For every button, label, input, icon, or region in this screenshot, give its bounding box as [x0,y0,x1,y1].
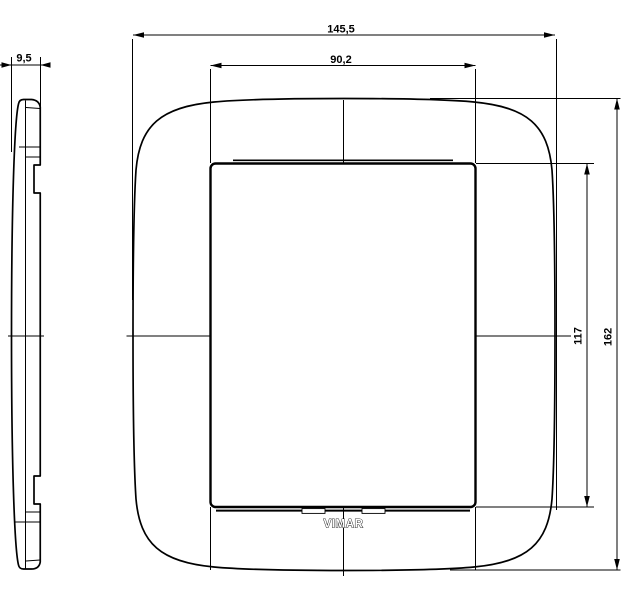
arrowhead [41,62,51,67]
clip-tab [302,509,325,514]
arrowhead [211,63,222,69]
clip-tab [362,509,385,514]
dimension-plate-width: 145,5 [133,24,557,511]
dim-side-depth-label: 9,5 [16,53,31,65]
arrowhead [614,99,620,110]
arrowhead [465,63,476,69]
arrowhead [544,32,555,38]
plate-outline [133,99,555,571]
arrowhead [584,496,590,507]
side-top-lip-line [26,108,40,109]
window-opening [211,164,476,508]
front-view: VIMAR [127,99,572,577]
dim-plate-width-label: 145,5 [327,24,355,36]
dimension-window-height: 117 [476,164,594,508]
dimension-plate-height: 162 [430,99,621,571]
drawing-canvas: 9,5 VIMAR [0,0,622,600]
arrowhead [614,559,620,570]
dim-plate-height-label: 162 [603,328,615,346]
vimar-plate-technical-drawing: 9,5 VIMAR [0,0,622,600]
arrowhead [2,62,12,67]
dim-window-height-label: 117 [573,327,585,345]
brand-logo: VIMAR [323,519,363,531]
side-bottom-lip-line [26,560,40,561]
dim-window-width-label: 90,2 [330,54,351,66]
side-profile-view [8,100,44,570]
arrowhead [584,164,590,175]
arrowhead [133,32,144,38]
